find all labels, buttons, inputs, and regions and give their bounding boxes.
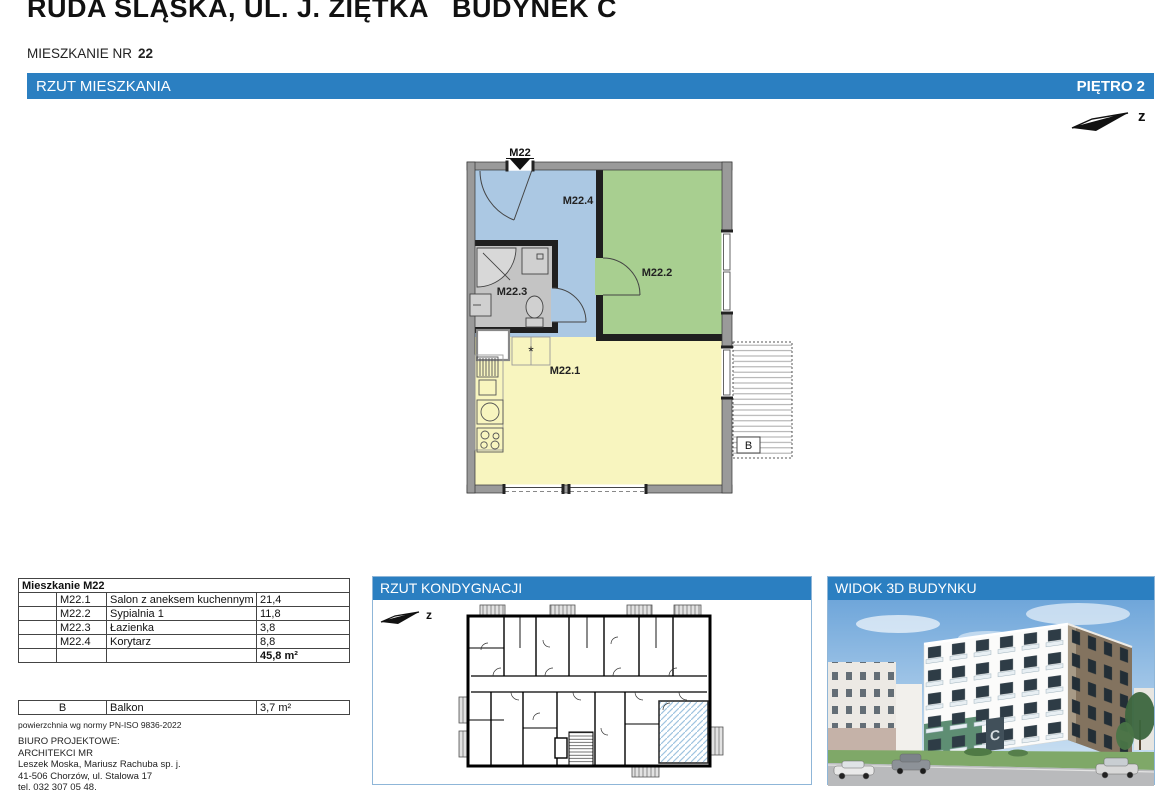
cloud <box>1026 603 1130 625</box>
bush <box>1008 750 1028 757</box>
apartment-number: 22 <box>138 46 153 61</box>
balcony-area: 3,7 m² <box>257 701 350 715</box>
washing-machine <box>522 248 548 274</box>
office-address: 41-506 Chorzów, ul. Stalowa 17 <box>18 771 181 783</box>
apartment-sheet: { "page": { "title": "RUDA ŚLĄSKA, UL. J… <box>0 0 1170 785</box>
bush <box>964 748 992 756</box>
room-bedroom-area <box>600 170 722 340</box>
apartment-number-line: MIESZKANIE NR22 <box>27 46 153 61</box>
storey-panel-title: RZUT KONDYGNACJI <box>373 577 811 600</box>
main-building: C <box>924 624 1132 764</box>
north-arrow-label: z <box>1138 108 1146 125</box>
table-row: B Balkon 3,7 m² <box>19 701 350 715</box>
view-3d-panel: WIDOK 3D BUDYNKU <box>827 576 1155 785</box>
storey-north-arrow: z <box>381 608 432 624</box>
entrance-label: M22 <box>509 147 530 159</box>
apartment-label: MIESZKANIE NR <box>27 46 132 61</box>
office-name: ARCHITEKCI MR <box>18 748 181 760</box>
living-window-2 <box>570 485 645 494</box>
storey-north-label: z <box>426 608 432 622</box>
balcony-name: Balkon <box>107 701 257 715</box>
elevator <box>555 738 567 758</box>
office-partners: Leszek Moska, Mariusz Rachuba sp. j. <box>18 759 181 771</box>
balcony-code: B <box>19 701 107 715</box>
plan-bar-left-label: RZUT MIESZKANIA <box>36 78 171 95</box>
view-3d-title: WIDOK 3D BUDYNKU <box>828 577 1154 600</box>
cloud <box>856 615 940 633</box>
north-arrow-lower <box>1072 113 1128 131</box>
office-heading: BIURO PROJEKTOWE: <box>18 736 181 748</box>
table-row: M22.3Łazienka3,8 <box>19 621 350 635</box>
north-arrow: z <box>1066 104 1154 140</box>
utility-symbol: * <box>528 343 534 359</box>
plan-title-bar: RZUT MIESZKANIA PIĘTRO 2 <box>27 73 1154 99</box>
balcony-label: B <box>745 440 752 452</box>
balcony: B <box>733 342 792 458</box>
living-window-1 <box>505 485 562 494</box>
label-bedroom: M22.2 <box>642 267 673 279</box>
table-row: M22.2Sypialnia 111,8 <box>19 607 350 621</box>
area-total: 45,8 m² <box>257 649 350 663</box>
toilet-tank <box>526 318 543 327</box>
toilet <box>526 296 543 318</box>
office-phone: tel. 032 307 05 48. <box>18 782 181 794</box>
label-hall: M22.4 <box>563 195 594 207</box>
table-row: M22.4Korytarz8,8 <box>19 635 350 649</box>
apartment-floor-plan: B <box>440 130 820 510</box>
area-table: Mieszkanie M22 M22.1Salon z aneksem kuch… <box>18 578 350 663</box>
building-letter: C <box>990 726 1000 743</box>
building-3d-render: C <box>828 600 1154 786</box>
label-bath: M22.3 <box>497 286 528 298</box>
norm-note: powierzchnia wg normy PN-ISO 9836-2022 <box>18 720 181 730</box>
bedroom-door-opening <box>595 258 604 295</box>
staircase <box>569 732 593 766</box>
page-title: RUDA ŚLĄSKA, UL. J. ZIĘTKA BUDYNEK C <box>27 0 617 24</box>
label-living: M22.1 <box>550 365 581 377</box>
bath-door-opening <box>551 288 559 322</box>
balcony-table: B Balkon 3,7 m² <box>18 700 350 715</box>
storey-plan-panel: RZUT KONDYGNACJI z <box>372 576 812 785</box>
kitchen-fridge <box>477 330 509 360</box>
table-total-row: 45,8 m² <box>19 649 350 663</box>
table-row: M22.1Salon z aneksem kuchennym21,4 <box>19 593 350 607</box>
highlighted-apartment <box>659 701 708 763</box>
plan-bar-floor-label: PIĘTRO 2 <box>1077 78 1145 95</box>
storey-plan-drawing: z <box>373 600 811 786</box>
area-table-title: Mieszkanie M22 <box>19 579 350 593</box>
